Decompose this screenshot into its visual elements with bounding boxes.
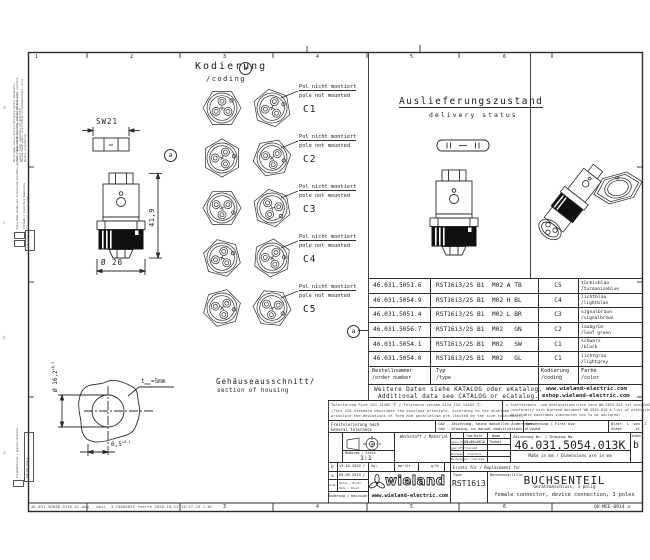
date-header: Tag/Date [466,434,482,438]
revision-index: b [328,464,337,469]
table-cell-type: RST16i3/2S B1 M02 GN [436,326,522,333]
sheet-count: Blatt 1 von 1 [611,422,647,426]
cad-note-en: CAD - drawing, no manual modifications a… [438,427,540,431]
grid-line [487,432,488,462]
part-subtitle-de: Geräteanschluss, 3-polig [487,485,642,490]
zone-number: 6 [503,504,506,510]
doc-code: QU-MEE-0914 a [594,505,630,510]
table-cell-coding: C4 [539,297,577,304]
grid-line [608,420,609,432]
table-cell-type: RST16i3/2S B1 M02 GL [436,355,522,362]
tolerance-note: (This ISO-Standard describes the envelop… [331,408,509,413]
drawn-name: Thobel [489,440,502,444]
dim-cutout-diameter-tol: +0,1 [51,362,55,370]
pole-note-de: Pol nicht montiert [299,284,356,291]
type-value: RST16i3 [452,479,486,488]
grid-line [337,462,338,491]
pole-note-de: Pol nicht montiert [299,234,356,241]
coding-title-de: Kodierung [195,61,267,72]
substances-note: ☒ Stoffverbots- und Deklarationsliste na… [506,403,650,407]
table-cell-color-en: /lightgrey [581,360,608,365]
coding-label: C2 [303,154,316,165]
weight-unit: g/St. [431,464,441,468]
revision-date-header: Datum / Blatt [339,481,361,485]
zone-number: 6 [503,54,506,60]
zone-number: 4 [316,54,319,60]
pole-note-en: pole not mounted [299,243,350,249]
dim-tmax: tmax=5mm [141,378,165,385]
zone-number: 4 [316,504,319,510]
revision-index: a [328,473,337,478]
table-cell-color-en: /lightblue [581,301,608,306]
mm-note: Maße in mm / Dimensions are in mm [510,453,630,458]
grid-line [368,366,642,367]
pole-note-en: pole not mounted [299,293,350,299]
cad-note-de: CAD - Zeichnung, keine manuellen Änderun… [438,422,533,426]
table-cell-color-de: türkisblau [581,281,609,286]
norm-check-label: Normgepr./checked [451,452,481,456]
table-cell-type: RST16i3/2S B1 M02 A TB [436,282,522,289]
sheet-count: Sheet of [611,427,640,431]
scale-value: 1:1 [360,454,372,462]
tolerance-note: principle the deviations of form and par… [331,413,523,418]
table-header-coding-de: Kodierung [541,368,569,374]
revision-change-header: Änderung / Revision [328,494,368,498]
part-subtitle-en: female connector, device connection, 3 p… [487,492,642,498]
substances-note: declarable hazardous substances has to b… [510,413,620,417]
confidentiality-note: Zuwiderhandlungen verpflichten zu Schade… [22,70,28,162]
legend-note: DIN ISO 2768-m [26,458,29,478]
index-value: b [630,440,642,451]
legend-checkbox [14,232,25,239]
table-cell-order: 46.031.5056.7 [373,326,421,333]
coding-title-en: /coding [206,75,246,83]
legend-checkbox [13,480,24,487]
grid-line [394,432,395,471]
revision-date-header: Date / Sheet [339,486,359,490]
dim-cutout-diameter-value: Ø 16,2 [52,370,59,392]
eshop-link[interactable]: eshop.wieland-electric.com [542,393,630,399]
pole-note-de: Pol nicht montiert [299,84,356,91]
table-cell-color-de: lichtblau [581,295,606,300]
catalog-note-de: Weitere Daten siehe KATALOG oder eKatalo… [374,386,543,393]
delivery-title-de: Auslieferungszustand [399,96,543,108]
grid-line [418,462,419,471]
table-header-order-en: /order number [372,375,411,381]
coding-label: C4 [303,254,316,265]
legend-note: Freimaßtoleranz / general tolerance [16,428,19,478]
zone-number: 5 [410,54,413,60]
table-header-coding-en: /coding [541,375,562,381]
material-label: Werkstoff / Material [400,434,448,439]
table-cell-coding: C2 [539,326,577,333]
zone-number: 3 [223,504,226,510]
table-cell-coding: C1 [539,355,577,362]
grid-line [444,462,445,471]
grid-line [342,432,343,462]
table-cell-order: 46.031.5051.6 [373,282,421,289]
revision-marker-b: b [239,62,252,75]
housing-title-en: section of housing [217,388,289,394]
replacement-label: Ersatz für / Replacement for [453,465,520,470]
delivery-title-en: delivery status [429,111,518,119]
pole-note-en: pole not mounted [299,93,350,99]
table-cell-type: RST16i3/2S B1 M02 L BR [436,311,522,318]
connector-side-view [82,127,162,275]
drawing-sheet: 1 2 3 4 5 6 3 4 5 6 d c b a Weitergabe s… [0,0,650,560]
legend-note: Prüfmaße / inspection dimensions [23,183,26,229]
dim-cutout-diameter: Ø 16,2+0,1 [52,362,59,392]
table-cell-type: RST16i3/2S B1 M02 H BL [436,297,522,304]
wieland-logo-icon [369,475,386,490]
legend-note: CAD-Artikel, Änderungen nur über CAD [27,196,30,248]
dim-height: 41,9 [148,208,156,227]
grid-line [328,491,368,492]
grid-line [368,322,642,323]
table-header-color-en: /color [581,375,599,381]
table-cell-color-de: signalbraun [581,310,612,315]
wieland-logo-text: wieland [385,474,446,489]
table-cell-order: 46.031.5051.4 [373,311,421,318]
zone-number: 5 [410,504,413,510]
substances-note: (conformity with Wieland document WN 502… [510,408,650,412]
grid-line [368,293,642,294]
housing-title-de: Gehäuseausschnitt/ [216,377,315,386]
dim-cutout-width-value: 6,5 [111,441,122,448]
zone-number: 1 [35,54,38,60]
grid-line [328,479,368,480]
dim-cutout-width-tol: +0,1 [122,440,130,444]
drawing-number: 46.031.5054.013K [510,438,630,452]
dim-sw21: SW21 [96,117,118,126]
checked-label: geprüft/checked [451,446,477,450]
table-header-order-de: Bestellnummer [372,368,413,374]
grid-line [368,384,642,385]
coding-label: C5 [303,304,316,315]
grid-line [328,432,642,433]
revision-index-header: Index [329,483,337,487]
table-cell-color-de: schwarz [581,339,601,344]
material-check-label: Werkstgepr./checked [451,457,484,461]
zone-letter: a [3,451,6,456]
dim-tmax-value: =5mm [151,378,165,385]
general-tolerance-en: General tolerance [331,427,372,432]
grid-line [368,462,369,503]
isometric-view [533,159,646,246]
revision-marker-a: a [164,149,177,162]
coding-label: C3 [303,204,316,215]
pole-note-de: Pol nicht montiert [299,184,356,191]
coding-views [197,86,298,333]
table-cell-coding: C1 [539,341,577,348]
table-cell-color-de: lichtgrau [581,354,606,359]
grid-line [368,337,642,338]
zone-number: 3 [223,54,226,60]
name-header: Name [492,434,500,438]
type-label: Type [453,473,462,477]
table-cell-color-en: /black [581,345,597,350]
table-cell-type: RST16i3/2S B1 M02 SW [436,341,522,348]
volume-label: Vol. [371,464,379,468]
table-cell-order: 46.031.5054.9 [373,297,421,304]
table-cell-coding: C3 [539,311,577,318]
legend-note: Diese Maße werden bei Anlieferung besond… [16,94,19,229]
table-cell-coding: C5 [539,282,577,289]
grid-line [328,471,642,472]
zone-letter: d [3,106,6,111]
table-header-type-de: Typ [436,368,445,374]
grid-line [368,307,642,308]
table-cell-order: 46.031.5054.0 [373,355,421,362]
grid-line [368,351,642,352]
file-meta: 46_031_5004B.013K-AC-dwg_._mair_.3 CAD#4… [31,505,213,509]
zone-letter: c [3,221,6,226]
drawn-date: 23.07.2016 [464,440,485,444]
revision-marker-a: a [347,325,360,338]
pole-note-en: pole not mounted [299,193,350,199]
table-cell-color-de: laubgrün [581,325,604,330]
coding-label: C1 [303,104,316,115]
table-cell-order: 46.031.5054.1 [373,341,421,348]
delivery-views [430,140,489,255]
website-link[interactable]: www.wieland-electric.com [546,386,627,392]
grid-line [328,400,642,401]
dim-cutout-width: 6,5+0,1 [111,441,130,448]
wieland-url[interactable]: www.wieland-electric.com [370,493,450,499]
table-cell-color-en: /leaf green [581,331,611,336]
grid-line [435,420,436,432]
zone-number: 2 [130,54,133,60]
index-label: Index [630,434,642,438]
legend-checkbox [14,240,25,247]
revision-date: 09.05.2019 / [339,473,365,477]
pole-note-de: Pol nicht montiert [299,134,356,141]
revision-date: 13.10.2020 / [339,464,365,468]
table-header-color-de: Farbe [581,368,597,374]
first-use-label: Verwendung / First Use [526,422,575,426]
zone-letter: b [3,336,6,341]
pole-note-en: pole not mounted [299,143,350,149]
volume-unit: mm³/St. [398,464,412,468]
table-cell-color-en: /signalbrown [581,316,614,321]
table-cell-color-en: /turquoiseblue [581,287,619,292]
dim-diameter: Ø 20 [101,258,123,267]
table-header-type-en: /type [436,375,451,381]
catalog-note-en: Additional data see CATALOG or eCatalog. [378,393,539,400]
grid-line [328,462,642,463]
